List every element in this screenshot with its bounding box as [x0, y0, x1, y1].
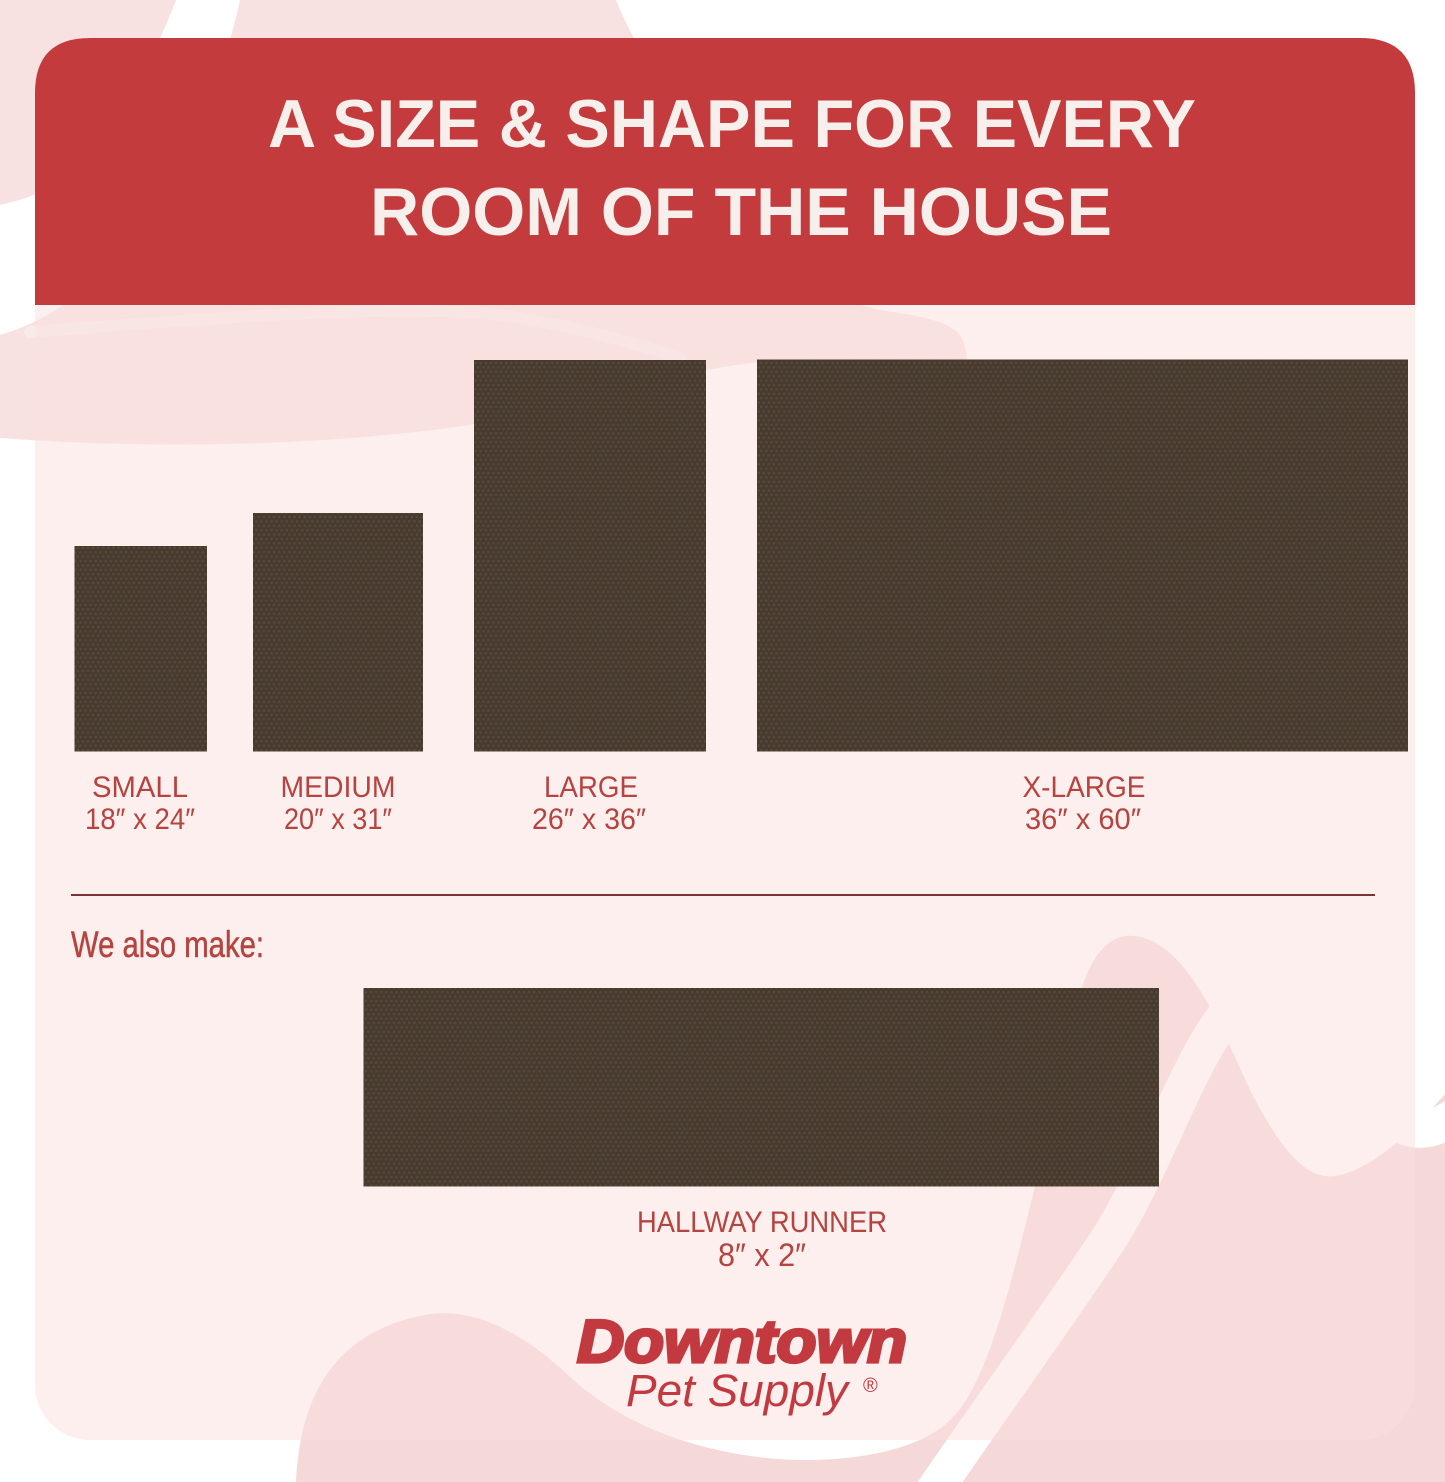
svg-text:SMALL: SMALL: [92, 771, 188, 804]
svg-text:Pet Supply: Pet Supply: [626, 1365, 851, 1416]
svg-text:HALLWAY RUNNER: HALLWAY RUNNER: [637, 1206, 887, 1239]
svg-text:LARGE: LARGE: [544, 771, 638, 804]
svg-text:We also make:: We also make:: [71, 924, 264, 965]
svg-text:36″ x 60″: 36″ x 60″: [1025, 803, 1141, 836]
svg-text:26″ x 36″: 26″ x 36″: [532, 803, 646, 836]
svg-text:18″ x 24″: 18″ x 24″: [85, 803, 195, 836]
svg-text:ROOM OF THE HOUSE: ROOM OF THE HOUSE: [370, 174, 1112, 250]
svg-text:A SIZE & SHAPE FOR EVERY: A SIZE & SHAPE FOR EVERY: [268, 86, 1196, 162]
svg-text:®: ®: [863, 1375, 878, 1397]
svg-text:20″ x 31″: 20″ x 31″: [284, 803, 392, 836]
svg-text:X-LARGE: X-LARGE: [1023, 771, 1146, 804]
svg-text:8″ x 2″: 8″ x 2″: [718, 1237, 806, 1273]
svg-text:MEDIUM: MEDIUM: [281, 771, 396, 804]
